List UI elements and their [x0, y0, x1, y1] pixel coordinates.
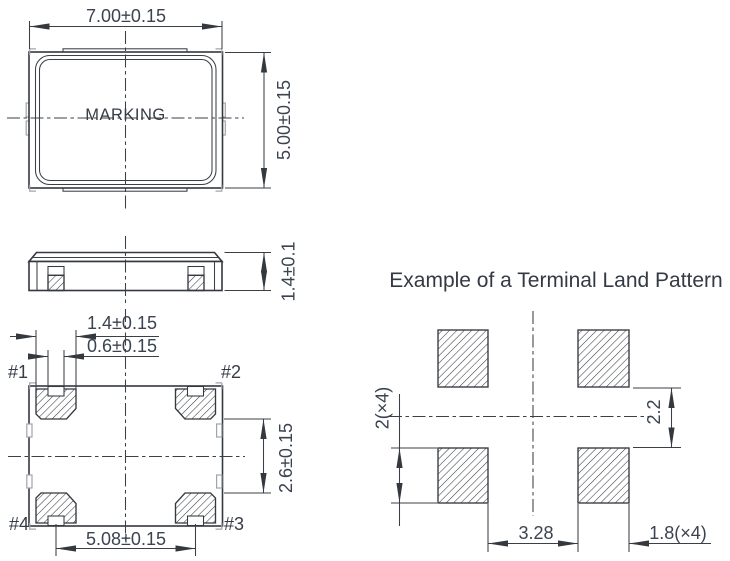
- castellation-side: [48, 267, 64, 276]
- pin-1-label: #1: [8, 362, 28, 382]
- pin-3-label: #3: [224, 514, 244, 534]
- pad-width-dim-label: 1.4±0.15: [87, 313, 157, 333]
- land-pattern-title: Example of a Terminal Land Pattern: [389, 269, 722, 292]
- dimension-pad-gap: 2.6±0.15: [224, 419, 296, 493]
- terminal-pad-side: [48, 275, 64, 290]
- pad-cutout: [48, 387, 64, 397]
- notch-width-dim-label: 0.6±0.15: [87, 336, 157, 356]
- dimension-land-pad-height: 2(×4): [373, 387, 438, 526]
- dimension-height-5mm: 5.00±0.15: [225, 53, 294, 189]
- dimension-land-vertical-gap: 2.2: [633, 388, 681, 448]
- land-pattern: Example of a Terminal Land Pattern 2(×4)…: [373, 269, 723, 552]
- land-pad-width-dim-label: 1.8(×4): [649, 523, 707, 543]
- land-pad-top-left: [438, 330, 488, 387]
- castellation-side: [188, 267, 204, 276]
- pin-4-label: #4: [9, 514, 29, 534]
- castellation-notch: [27, 424, 32, 437]
- dimension-pad-pitch: 5.08±0.15: [56, 524, 196, 556]
- marking-label: MARKING: [85, 106, 166, 124]
- pin-2-label: #2: [221, 362, 241, 382]
- pad-cutout: [188, 387, 204, 397]
- technical-drawing-page: MARKING 7.00±0.15 5.00±0.15: [0, 0, 730, 561]
- top-view: MARKING 7.00±0.15 5.00±0.15: [7, 6, 294, 211]
- castellation-notch: [27, 475, 32, 488]
- drawing-canvas: MARKING 7.00±0.15 5.00±0.15: [0, 0, 730, 561]
- bottom-view: #1 #2 #4 #3 1.4±0.15 0.6±0.15 2.6±0.15: [8, 309, 296, 556]
- castellation-notch: [217, 475, 222, 488]
- pad-pitch-dim-label: 5.08±0.15: [86, 529, 166, 549]
- land-horizontal-gap-dim-label: 3.28: [518, 523, 553, 543]
- dimension-thickness: 1.4±0.1: [225, 242, 299, 302]
- top-height-dim-label: 5.00±0.15: [274, 80, 294, 160]
- top-width-dim-label: 7.00±0.15: [86, 6, 166, 26]
- pad-gap-dim-label: 2.6±0.15: [276, 423, 296, 493]
- land-pad-bottom-right: [578, 448, 629, 503]
- land-pad-height-dim-label: 2(×4): [373, 387, 393, 430]
- dimension-notch-width: 0.6±0.15: [30, 336, 159, 388]
- side-height-dim-label: 1.4±0.1: [279, 242, 299, 302]
- dimension-land-pad-width: 1.8(×4): [629, 504, 711, 552]
- land-pad-top-right: [578, 330, 629, 387]
- land-vertical-gap-dim-label: 2.2: [644, 399, 664, 424]
- side-view: 1.4±0.1: [29, 236, 299, 306]
- terminal-pad-side: [188, 275, 204, 290]
- land-pad-bottom-left: [438, 448, 488, 503]
- castellation-notch: [217, 424, 222, 437]
